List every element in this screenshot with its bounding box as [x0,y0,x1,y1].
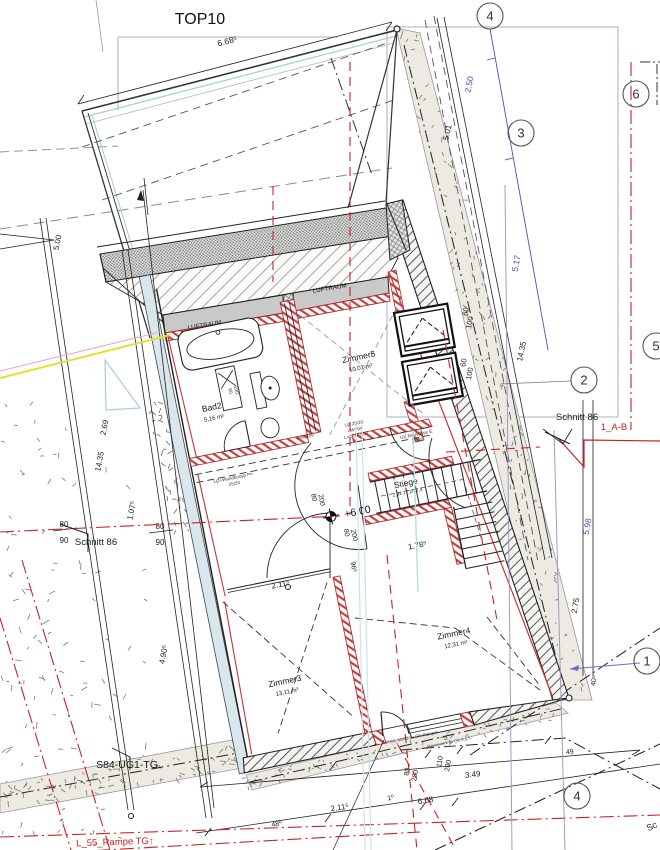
svg-text:60: 60 [458,358,468,368]
svg-text:S84-UG1-TG: S84-UG1-TG [96,759,158,771]
svg-text:90: 90 [60,536,69,545]
svg-text:6: 6 [632,87,639,102]
svg-text:1: 1 [643,654,650,669]
svg-text:Schnitt 86: Schnitt 86 [75,537,117,548]
svg-text:60: 60 [460,307,470,317]
svg-text:1_A-B: 1_A-B [601,422,627,433]
svg-text:TOP10: TOP10 [175,11,226,28]
svg-text:Schnitt 86: Schnitt 86 [556,412,598,423]
svg-text:49: 49 [566,749,575,757]
svg-text:4: 4 [486,9,493,24]
svg-text:3.49: 3.49 [465,769,482,780]
svg-text:80: 80 [156,522,165,531]
svg-text:4: 4 [573,789,580,804]
svg-text:90: 90 [156,538,165,547]
svg-text:80: 80 [403,767,411,776]
svg-text:2: 2 [580,373,587,388]
svg-text:3: 3 [517,126,524,141]
svg-text:5: 5 [652,339,659,354]
